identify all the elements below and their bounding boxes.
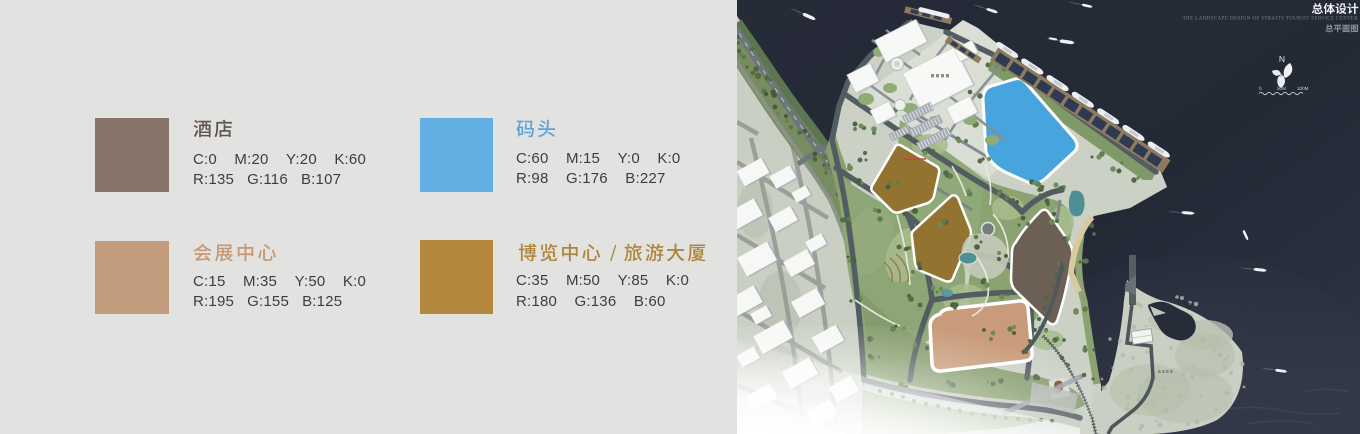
svg-text:0: 0 [1259, 86, 1262, 91]
svg-text:THE LANDSCAPE DESIGN OF STRAIT: THE LANDSCAPE DESIGN OF STRAITS TOURIST … [1183, 16, 1359, 22]
svg-text:100M: 100M [1297, 86, 1309, 91]
svg-text:50M: 50M [1277, 86, 1286, 91]
svg-text:N: N [1279, 54, 1285, 64]
